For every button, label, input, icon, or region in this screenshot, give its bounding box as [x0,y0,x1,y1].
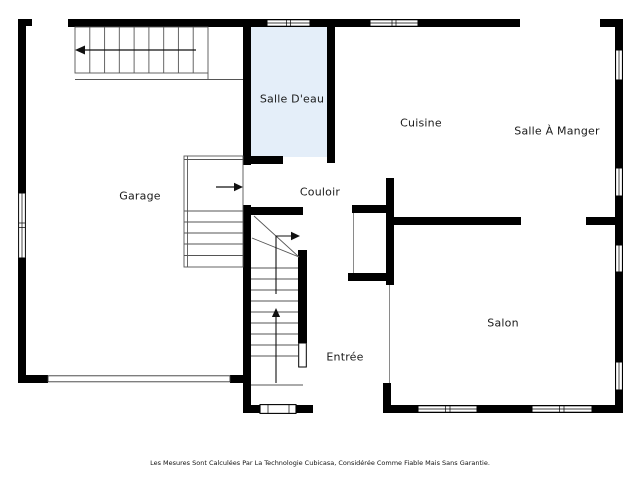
window-right-2 [616,168,623,196]
staircase-basement-flight [184,156,243,267]
room-label-garage: Garage [119,190,160,203]
stair-arrow-main-up [272,308,280,383]
window-top-cuisine [370,20,418,26]
wall-left-lower [18,258,26,375]
room-label-couloir: Couloir [300,186,340,199]
wall-salon-bottomleft-stub [383,383,391,405]
floor-plan-drawing [0,0,640,480]
wall-topleft-stub [18,19,32,26]
room-label-entree: Entrée [326,351,363,364]
staircase-upper-flight [75,27,243,80]
wall-salon-top-left [386,217,521,225]
floor-plan: Garage Salle D'eau Cuisine Salle À Mange… [0,0,640,480]
stair-arrow-main-turn [276,232,300,294]
window-top-salledeau [267,20,310,26]
wall-salon-top-right [586,217,623,225]
wall-stairs-top [251,207,303,215]
wall-salon-left [386,178,394,285]
room-label-cuisine: Cuisine [400,117,442,130]
staircase-main [251,216,303,385]
room-label-salle-a-manger: Salle À Manger [514,125,599,138]
window-left-garage [19,193,26,258]
window-right-1 [616,50,623,80]
stairwell-door [299,343,307,367]
wall-salledeau-right [327,19,335,163]
salle-deau-floor [251,26,327,157]
window-right-4 [616,362,623,390]
wall-stairs-right [298,250,307,343]
room-label-salon: Salon [487,317,518,330]
wall-central-upper [243,19,251,165]
wall-salledeau-bottom [243,156,283,164]
room-label-salle-deau: Salle D'eau [260,93,324,106]
wall-central-lower [243,205,251,413]
window-bottom-salon-1 [418,406,477,412]
disclaimer-text: Les Mesures Sont Calculées Par La Techno… [150,459,490,467]
doors [260,343,306,413]
wall-left-upper [18,19,26,193]
window-bottom-salon-2 [532,406,592,412]
wall-left-foot [18,375,48,383]
garage-door [48,376,230,382]
stair-arrow-garage-door [216,183,243,192]
front-door [260,405,296,414]
window-right-3 [616,245,623,272]
stair-arrow-upper-flight [75,46,196,55]
